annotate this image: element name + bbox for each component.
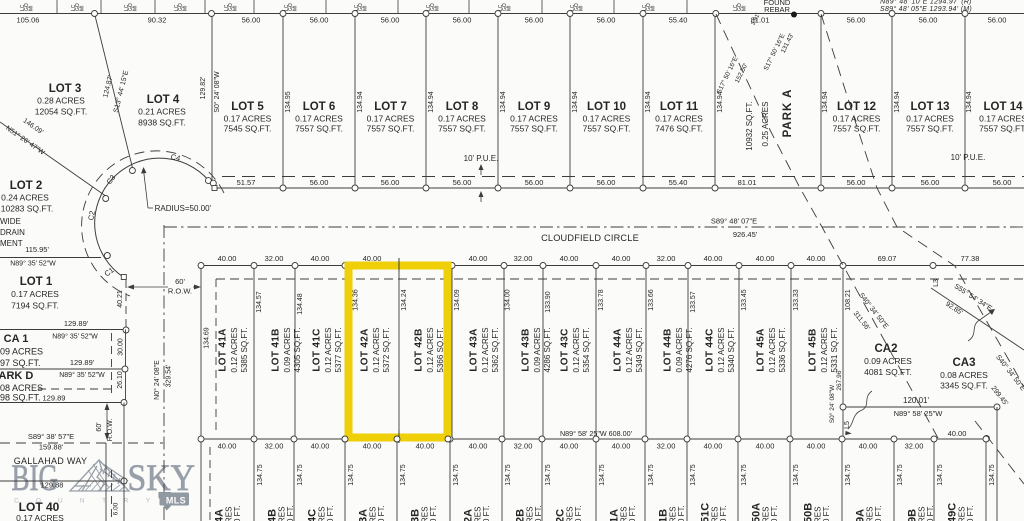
svg-text:40.00: 40.00 (416, 442, 435, 451)
svg-text:MI: MI (578, 5, 584, 11)
svg-text:N89° 58' 25"W: N89° 58' 25"W (894, 409, 944, 418)
svg-text:5340 SQ.FT.: 5340 SQ.FT. (727, 328, 736, 373)
svg-text:40.00: 40.00 (311, 254, 330, 263)
svg-text:N89° 35' 52"W: N89° 35' 52"W (52, 333, 98, 341)
svg-text:5362 SQ.FT.: 5362 SQ.FT. (491, 328, 500, 373)
svg-text:0.12 ACRES: 0.12 ACRES (625, 328, 634, 373)
svg-text:7557 SQ.FT.: 7557 SQ.FT. (367, 124, 415, 134)
svg-text:134.75: 134.75 (599, 464, 606, 486)
svg-text:108.21: 108.21 (845, 289, 852, 311)
svg-text:N89° 35' 52"W: N89° 35' 52"W (59, 371, 105, 379)
svg-text:7557 SQ.FT.: 7557 SQ.FT. (438, 124, 486, 134)
svg-text:134.95: 134.95 (285, 91, 292, 113)
svg-text:55.40: 55.40 (669, 16, 688, 25)
svg-text:LOT 10: LOT 10 (587, 101, 626, 113)
svg-text:329.54': 329.54' (166, 365, 173, 388)
svg-text:134.75: 134.75 (845, 464, 852, 486)
svg-text:134.00: 134.00 (505, 289, 512, 311)
svg-text:40.21: 40.21 (117, 290, 124, 308)
svg-text:0.24 ACRES: 0.24 ACRES (1, 193, 49, 203)
svg-text:5354 SQ.FT.: 5354 SQ.FT. (582, 328, 591, 373)
svg-text:0 FT.: 0 FT. (429, 505, 438, 521)
svg-text:S89° 48' 07"E: S89° 48' 07"E (711, 217, 757, 226)
svg-text:134.75: 134.75 (937, 464, 944, 486)
svg-text:56.00: 56.00 (847, 178, 866, 187)
svg-text:LOT 8: LOT 8 (446, 101, 479, 113)
svg-text:LOT 5: LOT 5 (231, 101, 264, 113)
svg-text:CA3: CA3 (952, 357, 975, 369)
svg-text:105.06: 105.06 (17, 16, 40, 25)
svg-text:LOT 45A: LOT 45A (756, 328, 767, 371)
svg-text:134.75: 134.75 (989, 464, 996, 486)
svg-text:0 FT.: 0 FT. (966, 505, 975, 521)
svg-text:134.94: 134.94 (822, 91, 829, 113)
svg-text:5331 SQ.FT.: 5331 SQ.FT. (830, 328, 839, 373)
svg-text:56.00: 56.00 (453, 178, 472, 187)
svg-text:32.00: 32.00 (265, 254, 284, 263)
svg-text:MI: MI (28, 5, 34, 11)
svg-text:40.00: 40.00 (218, 254, 237, 263)
svg-text:134.75: 134.75 (297, 464, 304, 486)
svg-text:MI: MI (434, 5, 440, 11)
svg-text:0.09 ACRES: 0.09 ACRES (533, 328, 542, 373)
svg-text:134.94: 134.94 (572, 91, 579, 113)
svg-text:0.17 ACRES: 0.17 ACRES (367, 114, 415, 124)
svg-text:134.57: 134.57 (256, 291, 263, 313)
svg-text:09 ACRES: 09 ACRES (0, 347, 43, 357)
svg-text:56.00: 56.00 (525, 178, 544, 187)
svg-text:0.12 ACRES: 0.12 ACRES (717, 328, 726, 373)
svg-text:40.00: 40.00 (612, 442, 631, 451)
svg-text:0.12 ACRES: 0.12 ACRES (324, 328, 333, 373)
svg-text:134.94: 134.94 (894, 91, 901, 113)
svg-text:7557 SQ.FT.: 7557 SQ.FT. (979, 124, 1024, 134)
svg-text:LOT 44B: LOT 44B (663, 328, 674, 371)
svg-text:MI: MI (292, 5, 298, 11)
svg-text:R.O.W.: R.O.W. (168, 287, 192, 296)
svg-text:926.45': 926.45' (733, 230, 758, 239)
svg-text:134.94: 134.94 (357, 91, 364, 113)
svg-text:0.12 ACRES: 0.12 ACRES (372, 328, 381, 373)
svg-text:40.00: 40.00 (469, 442, 488, 451)
svg-text:08 ACRES: 08 ACRES (0, 383, 43, 393)
svg-text:134.75: 134.75 (257, 464, 264, 486)
svg-text:4081 SQ.FT.: 4081 SQ.FT. (864, 367, 912, 377)
svg-text:134.75: 134.75 (648, 464, 655, 486)
svg-text:0 FT.: 0 FT. (534, 505, 543, 521)
svg-text:98 SQ.FT.: 98 SQ.FT. (0, 393, 41, 403)
svg-text:S0° 24' 08"W: S0° 24' 08"W (213, 71, 221, 113)
svg-text:120.01': 120.01' (903, 396, 929, 405)
svg-text:129.89: 129.89 (43, 394, 66, 403)
svg-text:32.00: 32.00 (514, 254, 533, 263)
svg-text:40.00: 40.00 (704, 254, 723, 263)
svg-text:CLOUDFIELD CIRCLE: CLOUDFIELD CIRCLE (541, 233, 639, 243)
svg-text:N89° 35' 52"W: N89° 35' 52"W (10, 260, 56, 268)
svg-text:134.75: 134.75 (348, 464, 355, 486)
svg-text:0.12 ACRES: 0.12 ACRES (572, 328, 581, 373)
svg-text:40.00: 40.00 (807, 442, 826, 451)
svg-text:LOT 14: LOT 14 (984, 101, 1024, 113)
svg-text:N0° 24' 08"E: N0° 24' 08"E (153, 360, 161, 400)
svg-text:PARK D: PARK D (0, 370, 33, 382)
svg-text:115.95': 115.95' (25, 245, 49, 254)
svg-text:134.75: 134.75 (453, 464, 460, 486)
svg-text:129.89': 129.89' (70, 358, 95, 367)
svg-text:5372 SQ.FT.: 5372 SQ.FT. (382, 328, 391, 373)
svg-text:L3: L3 (933, 279, 940, 287)
svg-text:7476 SQ.FT.: 7476 SQ.FT. (655, 124, 703, 134)
svg-text:0 FT.: 0 FT. (286, 505, 295, 521)
svg-text:LOT 7: LOT 7 (374, 101, 407, 113)
svg-text:40.00: 40.00 (948, 429, 967, 438)
svg-text:7557 SQ.FT.: 7557 SQ.FT. (295, 124, 343, 134)
svg-text:134.75: 134.75 (400, 464, 407, 486)
svg-text:LOT 4: LOT 4 (147, 94, 180, 106)
svg-text:0 FT.: 0 FT. (719, 505, 728, 521)
svg-text:MENT: MENT (0, 239, 23, 248)
svg-text:0 FT.: 0 FT. (770, 505, 779, 521)
svg-text:0.25 ACRES: 0.25 ACRES (761, 102, 770, 147)
svg-text:40.00: 40.00 (363, 442, 382, 451)
svg-text:32.00: 32.00 (657, 254, 676, 263)
svg-text:56.00: 56.00 (597, 16, 616, 25)
svg-text:51.57: 51.57 (237, 178, 256, 187)
svg-text:LOT 43A: LOT 43A (469, 328, 480, 371)
svg-text:134.09: 134.09 (454, 289, 461, 311)
svg-text:0.12 ACRES: 0.12 ACRES (426, 328, 435, 373)
svg-text:T: T (102, 498, 106, 505)
svg-text:56.00: 56.00 (381, 178, 400, 187)
svg-text:0.09 ACRES: 0.09 ACRES (283, 328, 292, 373)
svg-text:60': 60' (175, 277, 185, 286)
svg-text:0.09 ACRES: 0.09 ACRES (675, 328, 684, 373)
svg-text:40.00: 40.00 (311, 442, 330, 451)
svg-text:4276 SQ.FT.: 4276 SQ.FT. (685, 328, 694, 373)
svg-text:0.28 ACRES: 0.28 ACRES (37, 96, 85, 106)
svg-text:7545 SQ.FT.: 7545 SQ.FT. (224, 124, 272, 134)
svg-text:0.17 ACRES: 0.17 ACRES (16, 513, 64, 521)
svg-text:10' P.U.E.: 10' P.U.E. (951, 153, 986, 162)
svg-text:LOT 43C: LOT 43C (560, 328, 571, 371)
svg-text:C2: C2 (86, 210, 97, 221)
svg-text:0.17 ACRES: 0.17 ACRES (583, 114, 631, 124)
svg-text:40.00: 40.00 (807, 254, 826, 263)
svg-text:81.01: 81.01 (738, 178, 757, 187)
svg-text:40.00: 40.00 (560, 254, 579, 263)
svg-text:267.96': 267.96' (836, 369, 843, 390)
svg-text:MI: MI (132, 5, 138, 11)
svg-text:LOT 3: LOT 3 (49, 83, 82, 95)
svg-text:56.00: 56.00 (453, 16, 472, 25)
svg-text:134.75: 134.75 (545, 464, 552, 486)
svg-text:60': 60' (96, 422, 103, 431)
svg-text:LOT 44C: LOT 44C (705, 328, 716, 371)
svg-text:LOT 2: LOT 2 (10, 180, 43, 192)
svg-text:0.17 ACRES: 0.17 ACRES (510, 114, 558, 124)
svg-text:MI: MI (506, 5, 512, 11)
svg-text:0.17 ACRES: 0.17 ACRES (906, 114, 954, 124)
svg-text:129.82': 129.82' (200, 77, 207, 100)
svg-text:MI: MI (79, 5, 85, 11)
svg-text:S0° 24' 08"W: S0° 24' 08"W (828, 384, 836, 423)
svg-text:129.89': 129.89' (64, 319, 89, 328)
svg-text:LOT 41A: LOT 41A (218, 328, 229, 371)
svg-text:LOT 12: LOT 12 (837, 101, 876, 113)
svg-text:133.45: 133.45 (741, 289, 748, 311)
svg-text:LOT 11: LOT 11 (660, 101, 699, 113)
svg-text:CA2: CA2 (874, 343, 897, 355)
svg-text:LOT 43B: LOT 43B (521, 328, 532, 371)
svg-text:R.O.W.: R.O.W. (107, 419, 114, 442)
svg-text:32.00: 32.00 (265, 442, 284, 451)
svg-text:90.32: 90.32 (148, 16, 167, 25)
svg-text:129.88: 129.88 (41, 481, 64, 490)
svg-text:S89° 38' 57"E: S89° 38' 57"E (28, 432, 74, 441)
svg-text:REBAR: REBAR (764, 5, 790, 14)
svg-text:7194 SQ.FT.: 7194 SQ.FT. (11, 301, 59, 311)
svg-text:5349 SQ.FT.: 5349 SQ.FT. (635, 328, 644, 373)
svg-text:MLS: MLS (166, 495, 186, 505)
svg-text:4286 SQ.FT.: 4286 SQ.FT. (543, 328, 552, 373)
svg-text:134.94: 134.94 (500, 91, 507, 113)
svg-text:RADIUS=50.00': RADIUS=50.00' (155, 204, 212, 213)
svg-text:LOT 9: LOT 9 (518, 101, 551, 113)
svg-text:55.40: 55.40 (669, 178, 688, 187)
svg-text:134.94: 134.94 (645, 91, 652, 113)
svg-text:134.69: 134.69 (204, 327, 211, 349)
svg-text:LOT 41C: LOT 41C (312, 328, 323, 371)
svg-text:134.48: 134.48 (297, 293, 304, 315)
svg-text:69.07: 69.07 (878, 254, 897, 263)
svg-text:134.75: 134.75 (793, 464, 800, 486)
svg-text:N89° 48' 10"E 1294.97' (R): N89° 48' 10"E 1294.97' (R) (880, 0, 972, 6)
svg-text:0 FT.: 0 FT. (574, 505, 583, 521)
svg-text:GALLAHAD WAY: GALLAHAD WAY (14, 456, 88, 466)
svg-text:LOT 44A: LOT 44A (613, 328, 624, 371)
svg-text:133.57: 133.57 (690, 291, 697, 313)
svg-text:134.94: 134.94 (966, 91, 973, 113)
svg-text:56.00: 56.00 (310, 178, 329, 187)
svg-text:LOT 1: LOT 1 (20, 276, 53, 288)
svg-text:0.17 ACRES: 0.17 ACRES (979, 114, 1024, 124)
svg-text:133.90: 133.90 (545, 291, 552, 313)
svg-text:40.00: 40.00 (756, 442, 775, 451)
svg-text:40.00: 40.00 (704, 442, 723, 451)
svg-text:0 FT.: 0 FT. (377, 505, 386, 521)
svg-text:7557 SQ.FT.: 7557 SQ.FT. (906, 124, 954, 134)
svg-text:8938 SQ.FT.: 8938 SQ.FT. (138, 118, 186, 128)
svg-text:26.10: 26.10 (117, 371, 124, 389)
svg-text:0.17 ACRES: 0.17 ACRES (655, 114, 703, 124)
svg-text:N: N (80, 498, 85, 505)
svg-text:0 FT.: 0 FT. (326, 505, 335, 521)
svg-text:0.17 ACRES: 0.17 ACRES (11, 289, 59, 299)
svg-text:LOT 40: LOT 40 (19, 500, 60, 514)
svg-text:LOT 13: LOT 13 (911, 101, 950, 113)
svg-text:56.00: 56.00 (597, 178, 616, 187)
svg-text:133.78: 133.78 (598, 289, 605, 311)
svg-text:0 FT.: 0 FT. (233, 505, 242, 521)
svg-text:LOT 41B: LOT 41B (271, 328, 282, 371)
svg-text:0.09 ACRES: 0.09 ACRES (864, 356, 912, 366)
svg-text:134.75: 134.75 (690, 464, 697, 486)
svg-text:32.00: 32.00 (905, 442, 924, 451)
svg-text:56.00: 56.00 (988, 16, 1007, 25)
svg-text:5377 SQ.FT.: 5377 SQ.FT. (334, 328, 343, 373)
svg-text:4305 SQ.FT.: 4305 SQ.FT. (293, 328, 302, 373)
svg-text:6.00: 6.00 (113, 502, 120, 515)
svg-text:32.00: 32.00 (514, 442, 533, 451)
svg-text:MI: MI (741, 5, 747, 11)
svg-text:56.00: 56.00 (919, 16, 938, 25)
svg-text:134.75: 134.75 (897, 464, 904, 486)
svg-text:40.00: 40.00 (218, 442, 237, 451)
svg-text:0.17 ACRES: 0.17 ACRES (833, 114, 881, 124)
svg-text:40.00: 40.00 (469, 254, 488, 263)
svg-text:MI: MI (650, 5, 656, 11)
svg-text:32.00: 32.00 (657, 442, 676, 451)
svg-text:0.17 ACRES: 0.17 ACRES (224, 114, 272, 124)
svg-text:40.00: 40.00 (560, 442, 579, 451)
svg-text:56.00: 56.00 (310, 16, 329, 25)
svg-text:56.00: 56.00 (381, 16, 400, 25)
svg-text:0 FT.: 0 FT. (822, 505, 831, 521)
svg-text:MI: MI (182, 5, 188, 11)
svg-text:7557 SQ.FT.: 7557 SQ.FT. (583, 124, 631, 134)
svg-text:0.08 ACRES: 0.08 ACRES (940, 370, 988, 380)
svg-text:0 FT.: 0 FT. (482, 505, 491, 521)
svg-text:10932 SQ.FT.: 10932 SQ.FT. (745, 101, 754, 150)
svg-text:40.00: 40.00 (756, 254, 775, 263)
svg-text:0 FT.: 0 FT. (677, 505, 686, 521)
svg-text:10' P.U.E.: 10' P.U.E. (464, 154, 499, 163)
svg-text:WIDE: WIDE (0, 217, 21, 226)
svg-text:5385 SQ.FT.: 5385 SQ.FT. (240, 328, 249, 373)
svg-text:5336 SQ.FT.: 5336 SQ.FT. (778, 328, 787, 373)
svg-text:L5: L5 (844, 421, 851, 429)
svg-text:0 FT.: 0 FT. (628, 505, 637, 521)
svg-text:10283 SQ.FT.: 10283 SQ.FT. (1, 204, 53, 214)
svg-text:134.75: 134.75 (505, 464, 512, 486)
svg-text:133.66: 133.66 (648, 289, 655, 311)
svg-text:159.88': 159.88' (39, 443, 64, 452)
svg-text:0.17 ACRES: 0.17 ACRES (438, 114, 486, 124)
svg-text:12054 SQ.FT.: 12054 SQ.FT. (35, 107, 87, 117)
svg-text:CA 1: CA 1 (4, 333, 29, 345)
svg-text:0.12 ACRES: 0.12 ACRES (768, 328, 777, 373)
svg-text:0 FT.: 0 FT. (926, 505, 935, 521)
svg-text:LOT 42A: LOT 42A (360, 328, 371, 371)
svg-text:0.21 ACRES: 0.21 ACRES (138, 107, 186, 117)
svg-text:0.12 ACRES: 0.12 ACRES (230, 328, 239, 373)
svg-text:3345 SQ.FT.: 3345 SQ.FT. (940, 381, 988, 391)
svg-text:134.24: 134.24 (401, 289, 408, 311)
svg-text:40.00: 40.00 (612, 254, 631, 263)
svg-text:LOT 6: LOT 6 (303, 101, 336, 113)
svg-text:134.75: 134.75 (741, 464, 748, 486)
svg-text:DRAIN: DRAIN (0, 228, 25, 237)
svg-text:LOT 42B: LOT 42B (414, 328, 425, 371)
svg-text:7557 SQ.FT.: 7557 SQ.FT. (510, 124, 558, 134)
svg-text:Y: Y (146, 498, 151, 505)
svg-text:LOT 45B: LOT 45B (808, 328, 819, 371)
svg-text:0 FT.: 0 FT. (874, 505, 883, 521)
svg-text:56.00: 56.00 (993, 178, 1012, 187)
svg-text:77.38: 77.38 (961, 254, 980, 263)
svg-text:0.12 ACRES: 0.12 ACRES (481, 328, 490, 373)
svg-text:56.00: 56.00 (525, 16, 544, 25)
svg-text:97 SQ.FT.: 97 SQ.FT. (0, 358, 41, 368)
svg-text:MI: MI (232, 5, 238, 11)
svg-text:133.33: 133.33 (793, 289, 800, 311)
svg-text:30.00: 30.00 (118, 338, 125, 356)
svg-text:134.36: 134.36 (353, 289, 360, 311)
svg-text:0.12 ACRES: 0.12 ACRES (820, 328, 829, 373)
svg-text:56.00: 56.00 (921, 178, 940, 187)
svg-text:40.00: 40.00 (859, 442, 878, 451)
svg-text:134.94: 134.94 (428, 91, 435, 113)
svg-text:56.00: 56.00 (242, 16, 261, 25)
svg-text:MI: MI (362, 5, 368, 11)
svg-text:56.00: 56.00 (847, 16, 866, 25)
svg-text:0.17 ACRES: 0.17 ACRES (295, 114, 343, 124)
svg-text:PARK A: PARK A (782, 89, 794, 138)
